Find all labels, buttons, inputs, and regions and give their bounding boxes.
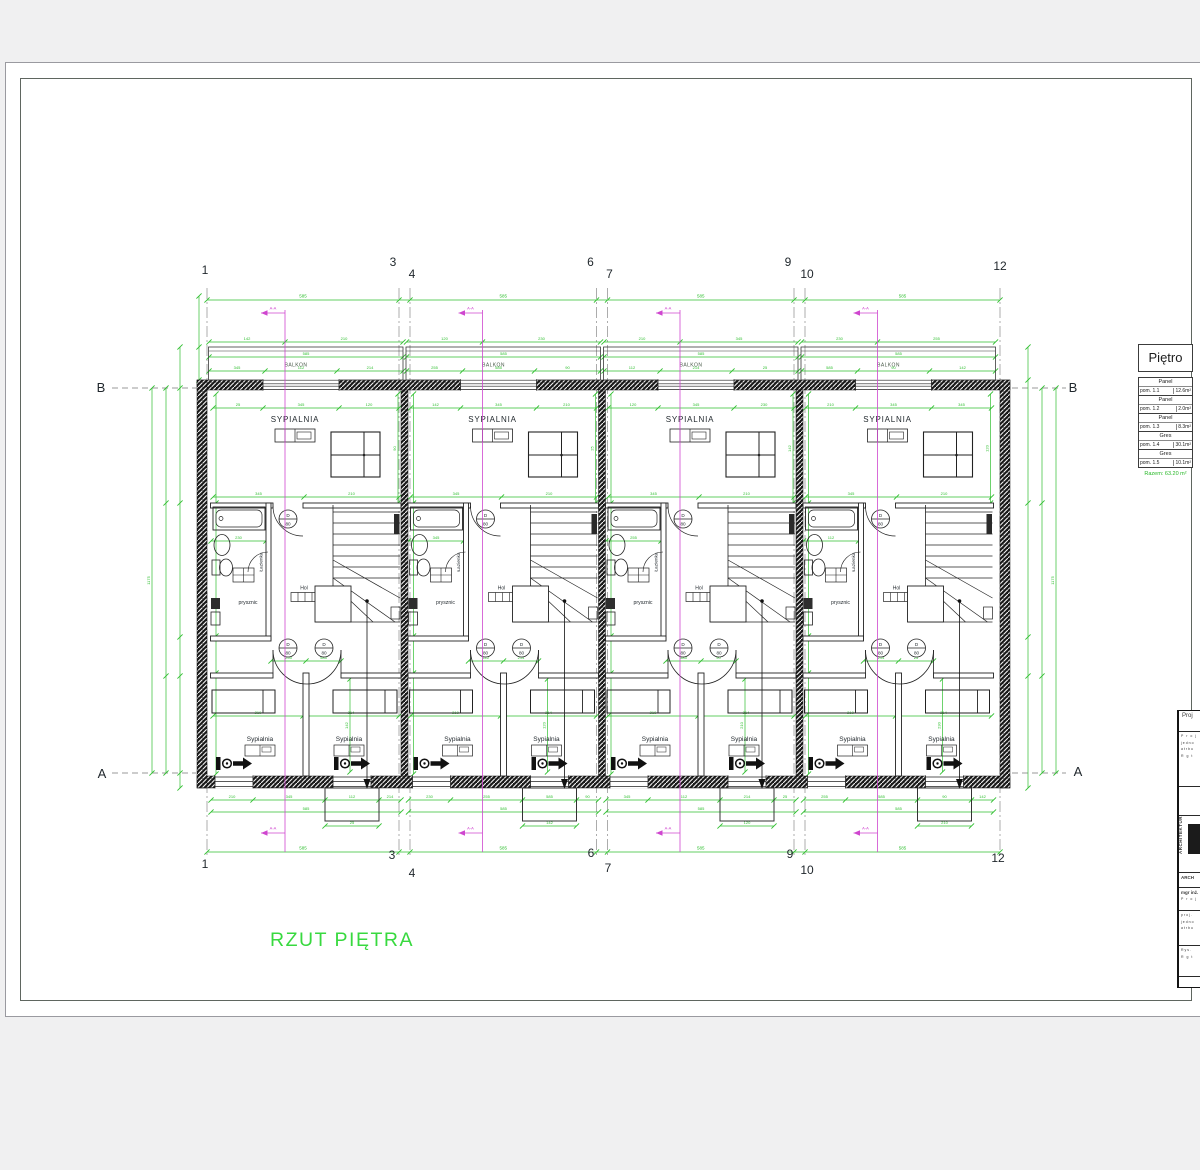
dim-text: 585 [697,846,705,851]
grid-label-top-9: 9 [785,255,792,269]
dim-text: 1175 [1050,575,1055,584]
title-block-cell: ARCHITEKTURA [1179,816,1200,873]
door-marker-width: 80 [285,650,291,655]
dim-text: 120 [985,444,990,451]
balkon-label: BALKON [680,363,703,369]
room-label-prysznic: prysznic [831,600,850,606]
dim-text: 345 [890,402,897,407]
dim-text: 585 [303,806,310,811]
room-label-sypialnia-left: Sypialnia [839,736,866,743]
dim-text: 25 [236,402,241,407]
grid-label-bottom-7: 7 [605,861,612,875]
dim-text: 345 [693,402,700,407]
dim-text: 255 [933,336,940,341]
legend-table: Panel pom. 1.112.6m² Panel pom. 1.22.0m²… [1138,377,1193,468]
dim-text: 585 [899,846,907,851]
section-label: A-A [862,826,869,831]
room-label-sypialnia-right: Sypialnia [928,736,955,743]
grid-label-bottom-10: 10 [800,863,814,877]
dim-text: 214 [744,794,751,799]
room-label-hol: Hol [893,586,901,592]
section-label: A-A [862,306,869,311]
dim-text: 210 [546,491,553,496]
room-label-lazienka: Łazienka [851,552,857,572]
grid-label-bottom-1: 1 [202,857,209,871]
section-label: A-A [467,826,474,831]
dim-text: 585 [546,794,553,799]
door-marker-width: 80 [914,650,920,655]
title-block-rotated-text: ARCHITEKTURA [1179,816,1183,854]
legend-row: Gres pom. 1.430.1m² [1139,432,1192,450]
dim-text: 230 [235,535,242,540]
unit-3: BALKONSYPIALNIAŁazienkaprysznicHolD80D80… [604,347,799,821]
dim-text: 585 [299,846,307,851]
axis-label-A-left: A [98,766,107,781]
dim-text: 255 [483,794,490,799]
dim-text: 120 [630,402,637,407]
dim-text: 214 [387,794,394,799]
dim-text: 345 [958,402,965,407]
room-label-hol: Hol [498,586,506,592]
section-label: A-A [270,826,277,831]
room-label-lazienka: Łazienka [654,552,660,572]
balkon-label: BALKON [877,363,900,369]
grid-label-bottom-4: 4 [409,866,416,880]
dim-text: 25 [783,794,788,799]
room-label-prysznic: prysznic [633,600,652,606]
dim-text: 255 [821,794,828,799]
door-marker-width: 80 [878,521,884,526]
dim-text: 585 [698,351,705,356]
grid-label-bottom-12: 12 [991,851,1005,865]
dim-text: 585 [500,806,507,811]
room-label-sypialnia-left: Sypialnia [444,736,471,743]
dim-text: 25 [590,446,595,451]
room-label-sypialnia-right: Sypialnia [336,736,363,743]
section-label: A-A [665,826,672,831]
dim-text: 255 [431,365,438,370]
dim-text: 585 [499,846,507,851]
dim-text: 210 [563,402,570,407]
dim-text: 142 [787,444,792,451]
grid-label-top-4: 4 [409,267,416,281]
dim-text: 142 [959,365,966,370]
axis-label-A-right: A [1074,764,1083,779]
dim-text: 345 [234,365,241,370]
room-label-prysznic: prysznic [436,600,455,606]
door-marker-width: 80 [483,650,489,655]
dim-text: 112 [681,794,688,799]
dim-text: 230 [836,336,843,341]
dim-text: 585 [500,351,507,356]
room-label-lazienka: Łazienka [259,552,265,572]
room-label-prysznic: prysznic [238,600,257,606]
legend-header: Piętro [1138,344,1193,372]
floor-plan-svg: 1422105853451122142534512034521023025558… [0,0,1200,1170]
grid-label-top-7: 7 [606,267,613,281]
dim-text: 90 [392,446,397,451]
door-marker-width: 80 [716,650,722,655]
legend-row: Panel pom. 1.38.3m² [1139,414,1192,432]
dim-text: 255 [630,535,637,540]
dim-text: 210 [639,336,646,341]
dim-text: 585 [697,294,705,299]
room-label-sypialnia-right: Sypialnia [731,736,758,743]
title-block-cell: mgr inż.P r o j [1179,888,1200,911]
grid-label-top-6: 6 [587,255,594,269]
dim-text: 585 [299,294,307,299]
dim-text: 585 [895,806,902,811]
room-schedule-legend: Piętro Panel pom. 1.112.6m² Panel pom. 1… [1138,344,1193,477]
grid-label-bottom-3: 3 [389,848,396,862]
dim-text: 120 [366,402,373,407]
dim-text: 345 [298,402,305,407]
title-block-cell: Proj [1179,711,1200,732]
exterior-walls [197,380,1010,788]
dim-text: 142 [244,336,251,341]
door-marker-width: 80 [483,521,489,526]
dim-text: 90 [942,794,947,799]
dim-text: 210 [341,336,348,341]
title-block-cell: proj.jednoatrbu [1179,911,1200,946]
dim-text: 345 [255,491,262,496]
room-label-hol: Hol [300,586,308,592]
dim-text: 112 [629,365,636,370]
dim-text: 585 [826,365,833,370]
grid-label-top-1: 1 [202,263,209,277]
legend-row: Panel pom. 1.112.6m² [1139,378,1192,396]
drawing-title: RZUT PIĘTRA [270,929,414,952]
dim-text: 585 [878,794,885,799]
dim-text: 90 [585,794,590,799]
dim-text: 210 [743,491,750,496]
grid-label-top-12: 12 [993,259,1007,273]
dim-text: 345 [848,491,855,496]
dim-text: 210 [348,491,355,496]
dim-text: 25 [763,365,768,370]
room-label-sypialnia-main: SYPIALNIA [468,415,517,424]
door-marker-width: 80 [680,521,686,526]
dim-text: 345 [650,491,657,496]
dim-text: 90 [565,365,570,370]
axis-label-B-left: B [97,380,106,395]
dim-text: 142 [979,794,986,799]
legend-row: Panel pom. 1.22.0m² [1139,396,1192,414]
balkon-label: BALKON [482,363,505,369]
dim-text: 120 [542,721,547,728]
room-label-hol: Hol [695,586,703,592]
dim-text: 345 [286,794,293,799]
dim-text: 585 [899,294,907,299]
door-marker-width: 80 [878,650,884,655]
dim-text: 585 [895,351,902,356]
room-label-sypialnia-left: Sypialnia [247,736,274,743]
dim-text: 214 [367,365,374,370]
dim-text: 230 [538,336,545,341]
dim-text: 345 [453,491,460,496]
dim-text: 230 [937,721,942,728]
room-label-sypialnia-main: SYPIALNIA [863,415,912,424]
dim-text: 210 [827,402,834,407]
section-label: A-A [270,306,277,311]
dim-text: 345 [433,535,440,540]
unit-1: BALKONSYPIALNIAŁazienkaprysznicHolD80D80… [209,347,404,821]
dim-text: 142 [432,402,439,407]
title-block: ProjP r o jjednoatrbuR g tARCHITEKTURAAR… [1177,710,1200,988]
dim-text: 112 [349,794,356,799]
dim-text: 112 [828,535,835,540]
grid-label-top-3: 3 [390,255,397,269]
dim-text: 585 [499,294,507,299]
dim-text: 210 [229,794,236,799]
grid-lines [112,288,1066,858]
grid-label-top-10: 10 [800,267,814,281]
dim-text: 1175 [146,575,151,584]
title-block-cell: P r o jjednoatrbuR g t [1179,732,1200,787]
room-label-sypialnia-main: SYPIALNIA [666,415,715,424]
dim-text: 345 [495,402,502,407]
dim-text: 585 [698,806,705,811]
dim-text: 142 [344,721,349,728]
door-marker-width: 80 [321,650,327,655]
dim-text: 230 [426,794,433,799]
dim-text: 210 [941,491,948,496]
balkon-label: BALKON [285,363,308,369]
screenshot-canvas: 1422105853451122142534512034521023025558… [0,0,1200,1170]
legend-row: Gres pom. 1.510.1m² [1139,450,1192,467]
unit-2: BALKONSYPIALNIAŁazienkaprysznicHolD80D80… [406,347,601,821]
room-label-sypialnia-right: Sypialnia [533,736,560,743]
building-plan: BALKONSYPIALNIAŁazienkaprysznicHolD80D80… [197,347,1010,821]
door-marker-width: 80 [680,650,686,655]
room-label-sypialnia-left: Sypialnia [642,736,669,743]
dim-text: 120 [441,336,448,341]
dim-text: 345 [736,336,743,341]
title-block-logo [1188,824,1200,854]
room-label-sypialnia-main: SYPIALNIA [271,415,320,424]
dim-text: 230 [761,402,768,407]
dim-text: 345 [624,794,631,799]
grid-label-bottom-6: 6 [588,846,595,860]
section-label: A-A [467,306,474,311]
dim-text: 210 [739,721,744,728]
title-block-cell: Rys.R g t [1179,946,1200,977]
axis-label-B-right: B [1069,380,1078,395]
section-label: A-A [665,306,672,311]
unit-4: BALKONSYPIALNIAŁazienkaprysznicHolD80D80… [801,347,996,821]
title-block-cell: ARCH [1179,873,1200,888]
grid-label-bottom-9: 9 [787,847,794,861]
room-label-lazienka: Łazienka [456,552,462,572]
door-marker-width: 80 [519,650,525,655]
dim-text: 585 [303,351,310,356]
legend-total: Razem: 63.20 m² [1138,471,1193,477]
door-marker-width: 80 [285,521,291,526]
title-block-cell [1179,787,1200,816]
